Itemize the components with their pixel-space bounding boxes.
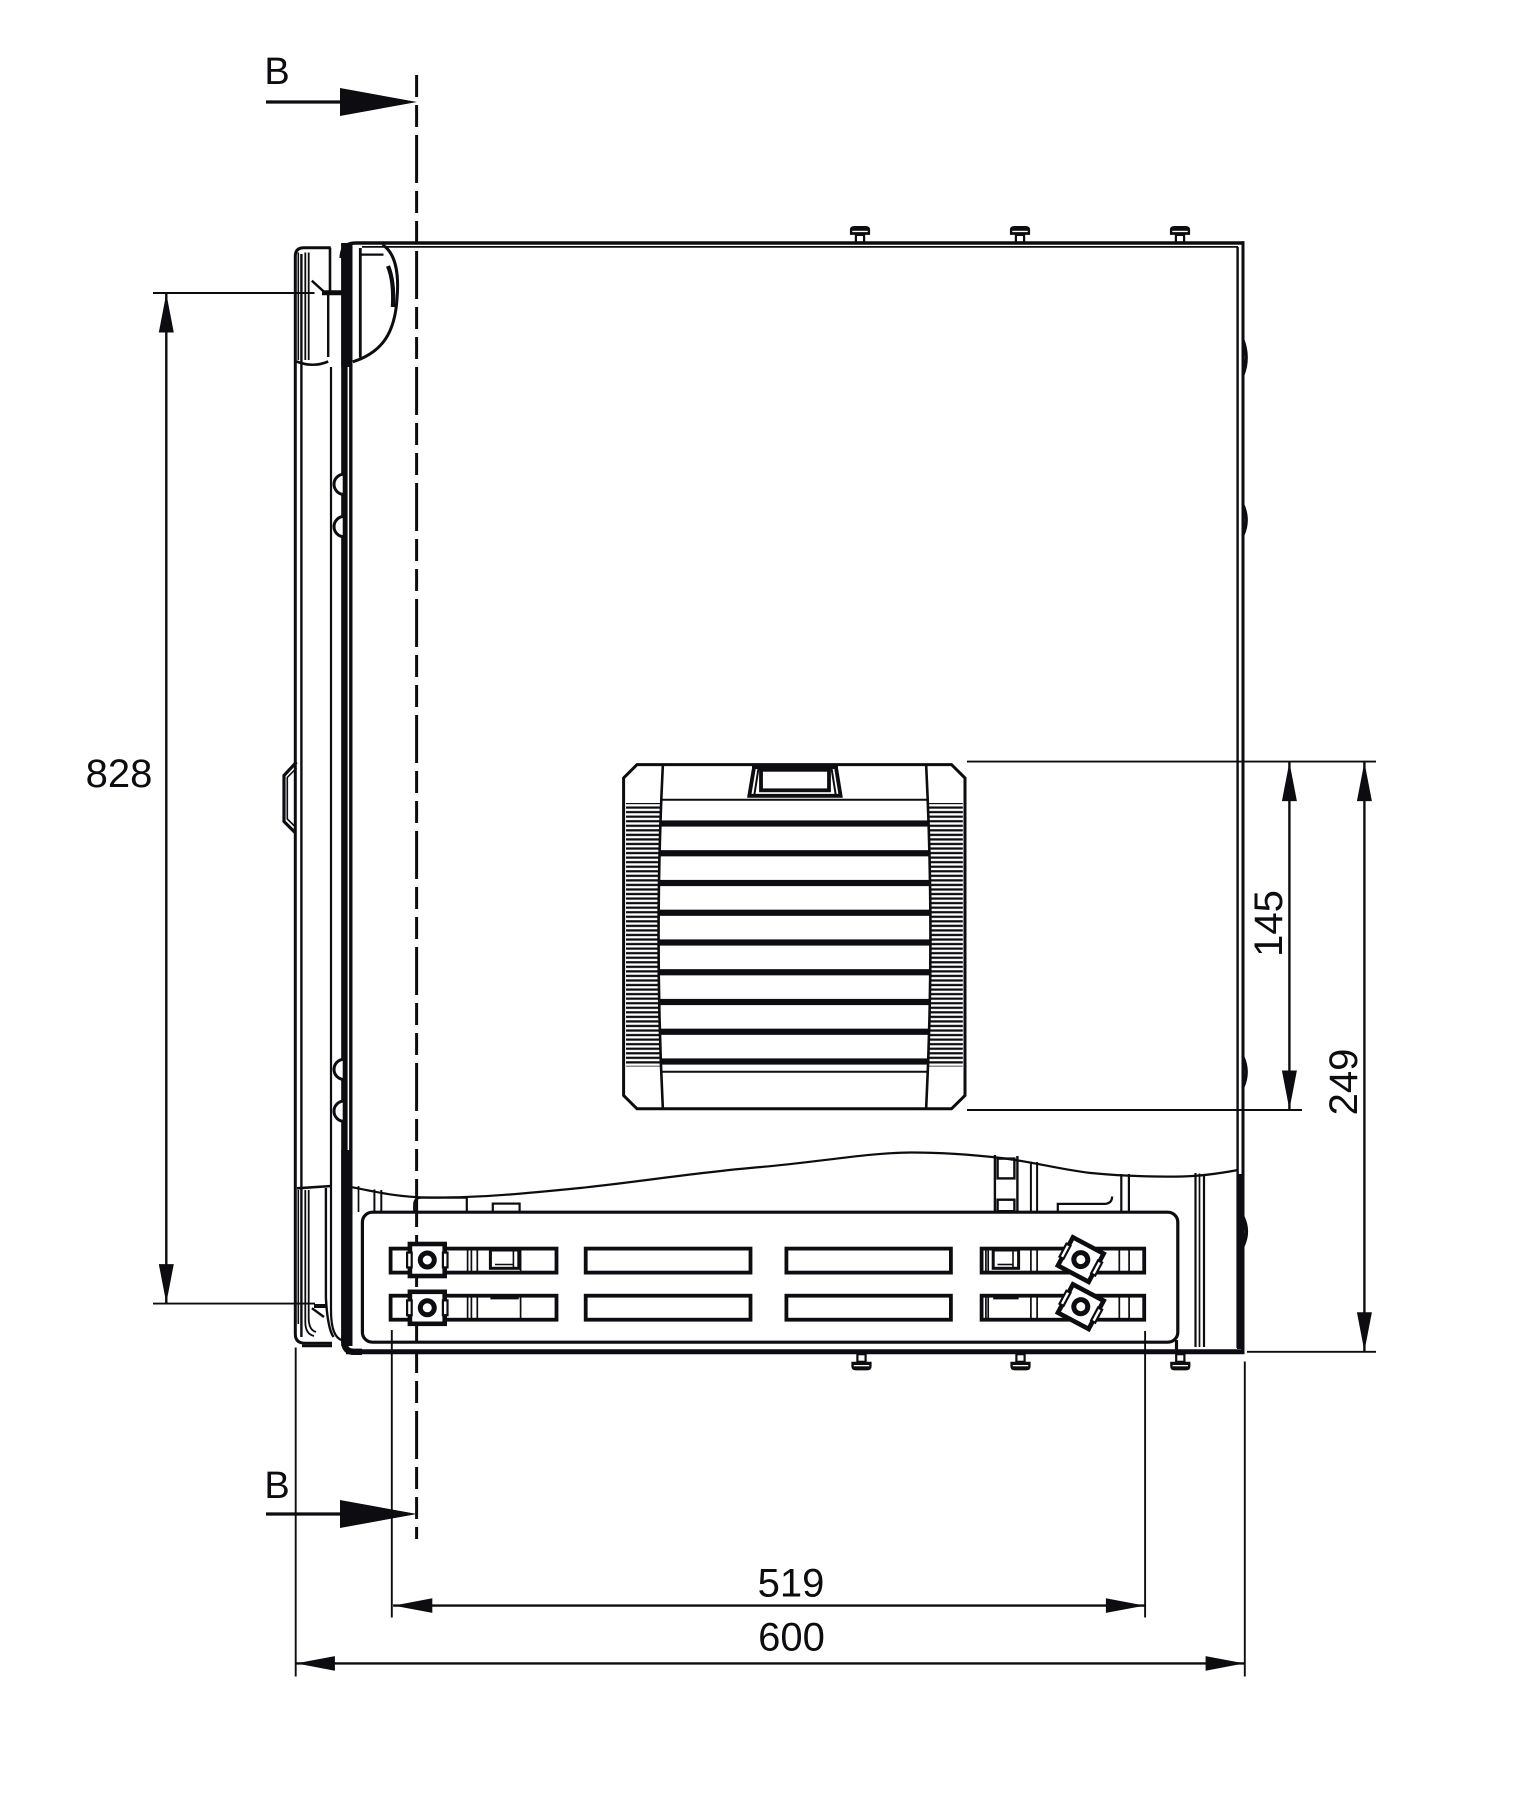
- svg-text:145: 145: [1247, 890, 1291, 957]
- svg-text:828: 828: [86, 752, 153, 796]
- svg-text:600: 600: [758, 1616, 825, 1660]
- svg-text:249: 249: [1322, 1049, 1366, 1116]
- svg-text:B: B: [264, 51, 289, 93]
- svg-text:519: 519: [758, 1562, 825, 1606]
- svg-text:B: B: [264, 1465, 289, 1507]
